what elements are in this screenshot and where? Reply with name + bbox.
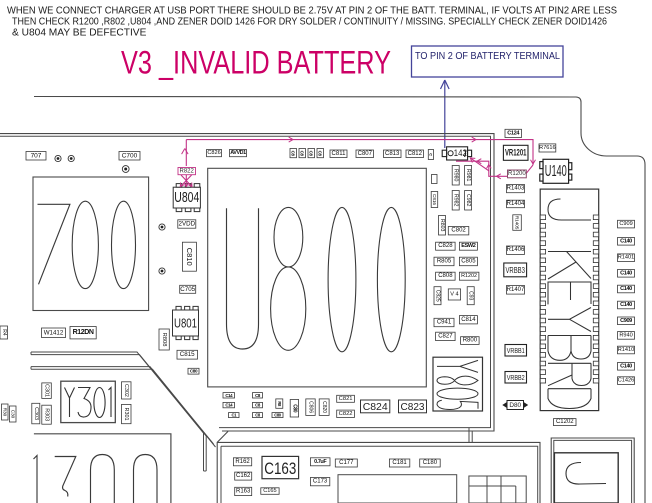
svg-text:C982: C982 (465, 194, 471, 207)
svg-text:C815: C815 (180, 351, 195, 358)
svg-text:ESW2: ESW2 (461, 243, 476, 249)
svg-text:C811: C811 (332, 151, 347, 157)
svg-text:R12DN: R12DN (73, 329, 94, 336)
svg-text:R1202: R1202 (461, 273, 477, 279)
svg-text:R1406: R1406 (507, 247, 525, 253)
svg-text:0.7uF: 0.7uF (314, 459, 327, 465)
svg-text:R1405: R1405 (515, 216, 520, 230)
svg-text:C80: C80 (291, 404, 297, 413)
svg-text:C827: C827 (438, 333, 453, 339)
svg-text:2VDD: 2VDD (179, 221, 196, 228)
svg-text:C810: C810 (185, 248, 194, 266)
svg-text:R1404: R1404 (507, 201, 525, 207)
svg-text:C162: C162 (236, 473, 251, 479)
svg-text:R4: R4 (1, 329, 7, 336)
svg-text:R303: R303 (44, 408, 50, 421)
svg-text:C30: C30 (10, 410, 15, 419)
svg-text:C14: C14 (225, 403, 233, 408)
svg-text:R163: R163 (236, 488, 251, 494)
svg-text:C181: C181 (392, 460, 407, 466)
svg-text:C140: C140 (620, 302, 632, 308)
svg-text:D80: D80 (509, 402, 521, 409)
svg-text:VRBB1: VRBB1 (507, 346, 525, 355)
svg-text:C812: C812 (408, 151, 423, 157)
svg-text:VRBB3: VRBB3 (505, 265, 525, 275)
svg-text:C1426: C1426 (618, 378, 634, 384)
svg-text:C173: C173 (313, 479, 328, 485)
svg-text:W1412: W1412 (44, 329, 64, 336)
svg-text:R1401: R1401 (618, 255, 634, 261)
svg-text:142: 142 (454, 148, 467, 159)
svg-text:U801: U801 (174, 316, 197, 331)
svg-text:C824: C824 (363, 401, 388, 413)
svg-text:C140: C140 (620, 238, 632, 244)
svg-text:C80: C80 (190, 369, 198, 374)
svg-text:C813: C813 (385, 151, 400, 157)
svg-text:C814: C814 (461, 317, 476, 323)
svg-text:C808: C808 (438, 273, 453, 279)
svg-text:R808: R808 (161, 333, 167, 347)
svg-text:V3 _INVALID BATTERY: V3 _INVALID BATTERY (121, 45, 391, 81)
svg-text:C140: C140 (620, 363, 632, 369)
svg-text:R1403: R1403 (507, 186, 525, 192)
svg-text:C802: C802 (451, 228, 466, 234)
svg-text:U804: U804 (174, 190, 199, 206)
svg-text:C705: C705 (180, 286, 195, 293)
svg-text:C806: C806 (308, 401, 314, 413)
svg-text:C825: C825 (435, 290, 441, 302)
svg-text:C303: C303 (33, 407, 39, 420)
svg-text:C909: C909 (619, 221, 632, 227)
svg-text:R805: R805 (437, 258, 452, 264)
svg-text:R980: R980 (453, 169, 459, 182)
svg-text:C807: C807 (358, 151, 373, 157)
svg-text:TO PIN 2 OF BATTERY TERMINAL: TO PIN 2 OF BATTERY TERMINAL (415, 51, 560, 62)
svg-text:C302: C302 (123, 384, 129, 397)
svg-text:C909: C909 (620, 318, 632, 324)
svg-text:R981: R981 (465, 169, 471, 182)
svg-text:R940: R940 (619, 332, 632, 338)
svg-text:VRBB2: VRBB2 (507, 373, 525, 382)
svg-text:R822: R822 (180, 168, 195, 174)
svg-text:C93: C93 (468, 291, 474, 300)
svg-text:707: 707 (31, 152, 42, 159)
svg-text:& U804 MAY BE DEFECTIVE: & U804 MAY BE DEFECTIVE (12, 28, 147, 39)
svg-text:V 4: V 4 (450, 291, 458, 297)
svg-text:AVVD1: AVVD1 (230, 150, 246, 156)
svg-text:C823: C823 (401, 401, 425, 413)
svg-text:THEN CHECK R1200 ,R802 ,U804 ,: THEN CHECK R1200 ,R802 ,U804 ,AND ZENER … (12, 17, 607, 28)
svg-text:C816: C816 (432, 194, 437, 205)
svg-text:R1200: R1200 (508, 171, 526, 177)
svg-text:R803: R803 (439, 219, 445, 232)
svg-text:R162: R162 (235, 459, 250, 465)
svg-text:C941: C941 (437, 320, 452, 326)
svg-text:R301: R301 (123, 408, 129, 421)
svg-text:U140: U140 (545, 163, 567, 180)
svg-text:C14: C14 (225, 393, 233, 398)
svg-text:R1410: R1410 (618, 347, 634, 353)
svg-text:C124: C124 (507, 130, 520, 136)
svg-text:C822: C822 (339, 411, 353, 417)
svg-text:C177: C177 (339, 460, 354, 466)
svg-text:C820: C820 (321, 401, 327, 413)
svg-text:C301: C301 (44, 384, 50, 397)
svg-text:C821: C821 (339, 396, 353, 402)
svg-text:WHEN WE CONNECT CHARGER AT USB: WHEN WE CONNECT CHARGER AT USB PORT THER… (7, 6, 617, 17)
svg-text:R30: R30 (2, 408, 7, 417)
svg-text:C80: C80 (274, 413, 282, 418)
svg-text:R7616: R7616 (539, 145, 555, 151)
svg-text:C165: C165 (263, 488, 276, 494)
svg-text:C826: C826 (207, 150, 220, 156)
svg-text:C140: C140 (620, 286, 632, 292)
svg-text:R982: R982 (453, 194, 459, 207)
svg-text:R800: R800 (463, 338, 478, 344)
svg-text:C805: C805 (461, 258, 476, 264)
svg-text:C828: C828 (438, 243, 453, 249)
svg-text:C163: C163 (264, 459, 296, 478)
svg-text:C140: C140 (620, 270, 632, 276)
svg-text:VR1201: VR1201 (505, 148, 527, 159)
svg-text:C700: C700 (122, 152, 138, 159)
svg-text:C1202: C1202 (556, 419, 574, 425)
svg-text:R1407: R1407 (507, 287, 525, 293)
svg-text:C180: C180 (423, 460, 438, 466)
